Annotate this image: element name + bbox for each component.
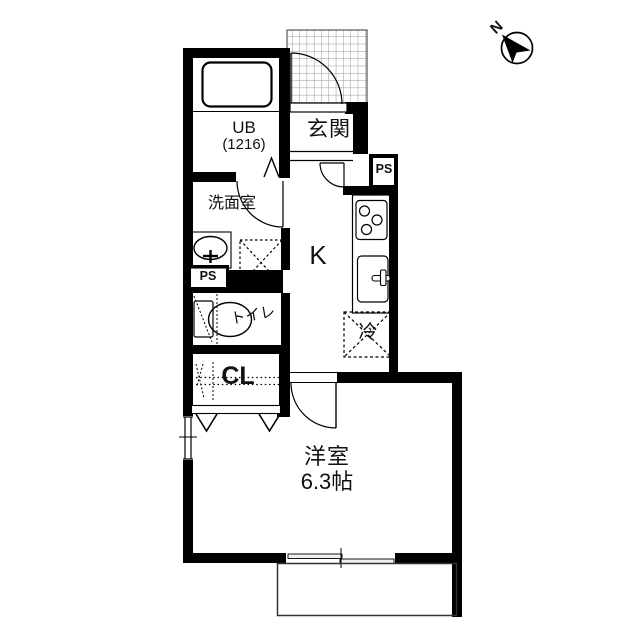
balcony xyxy=(278,564,457,616)
bathtub-icon xyxy=(192,63,279,112)
closet-bifold-doors xyxy=(192,406,281,432)
western-room-size: 6.3帖 xyxy=(285,470,369,493)
refrigerator-label: 冷 xyxy=(357,323,379,343)
pipe-space-right-label: PS xyxy=(371,163,397,176)
floor-plan: 玄関 UB (1216) 洗面室 トイレ CL K 冷 洋室 6.3帖 PS P… xyxy=(0,0,640,639)
left-window xyxy=(179,416,197,460)
unit-bath-label: UB xyxy=(219,119,269,137)
pipe-space-left-label: PS xyxy=(195,270,221,283)
floor-plan-drawing xyxy=(0,0,640,639)
western-room-door xyxy=(290,373,337,429)
kitchen-counter xyxy=(353,195,391,313)
unit-bath-size: (1216) xyxy=(207,137,281,153)
closet-label: CL xyxy=(220,363,256,389)
entrance-porch-hatch xyxy=(287,30,367,108)
washbasin-icon xyxy=(190,232,231,268)
sliding-window xyxy=(286,548,395,568)
western-room-label: 洋室 xyxy=(291,445,363,468)
kitchen-label: K xyxy=(304,242,332,269)
entrance-step xyxy=(290,151,353,161)
hall-door xyxy=(320,163,344,188)
washroom-label: 洗面室 xyxy=(195,196,269,213)
entrance-label: 玄関 xyxy=(297,119,361,141)
compass-icon xyxy=(502,33,533,64)
unit-bath-door-icon xyxy=(264,158,279,177)
